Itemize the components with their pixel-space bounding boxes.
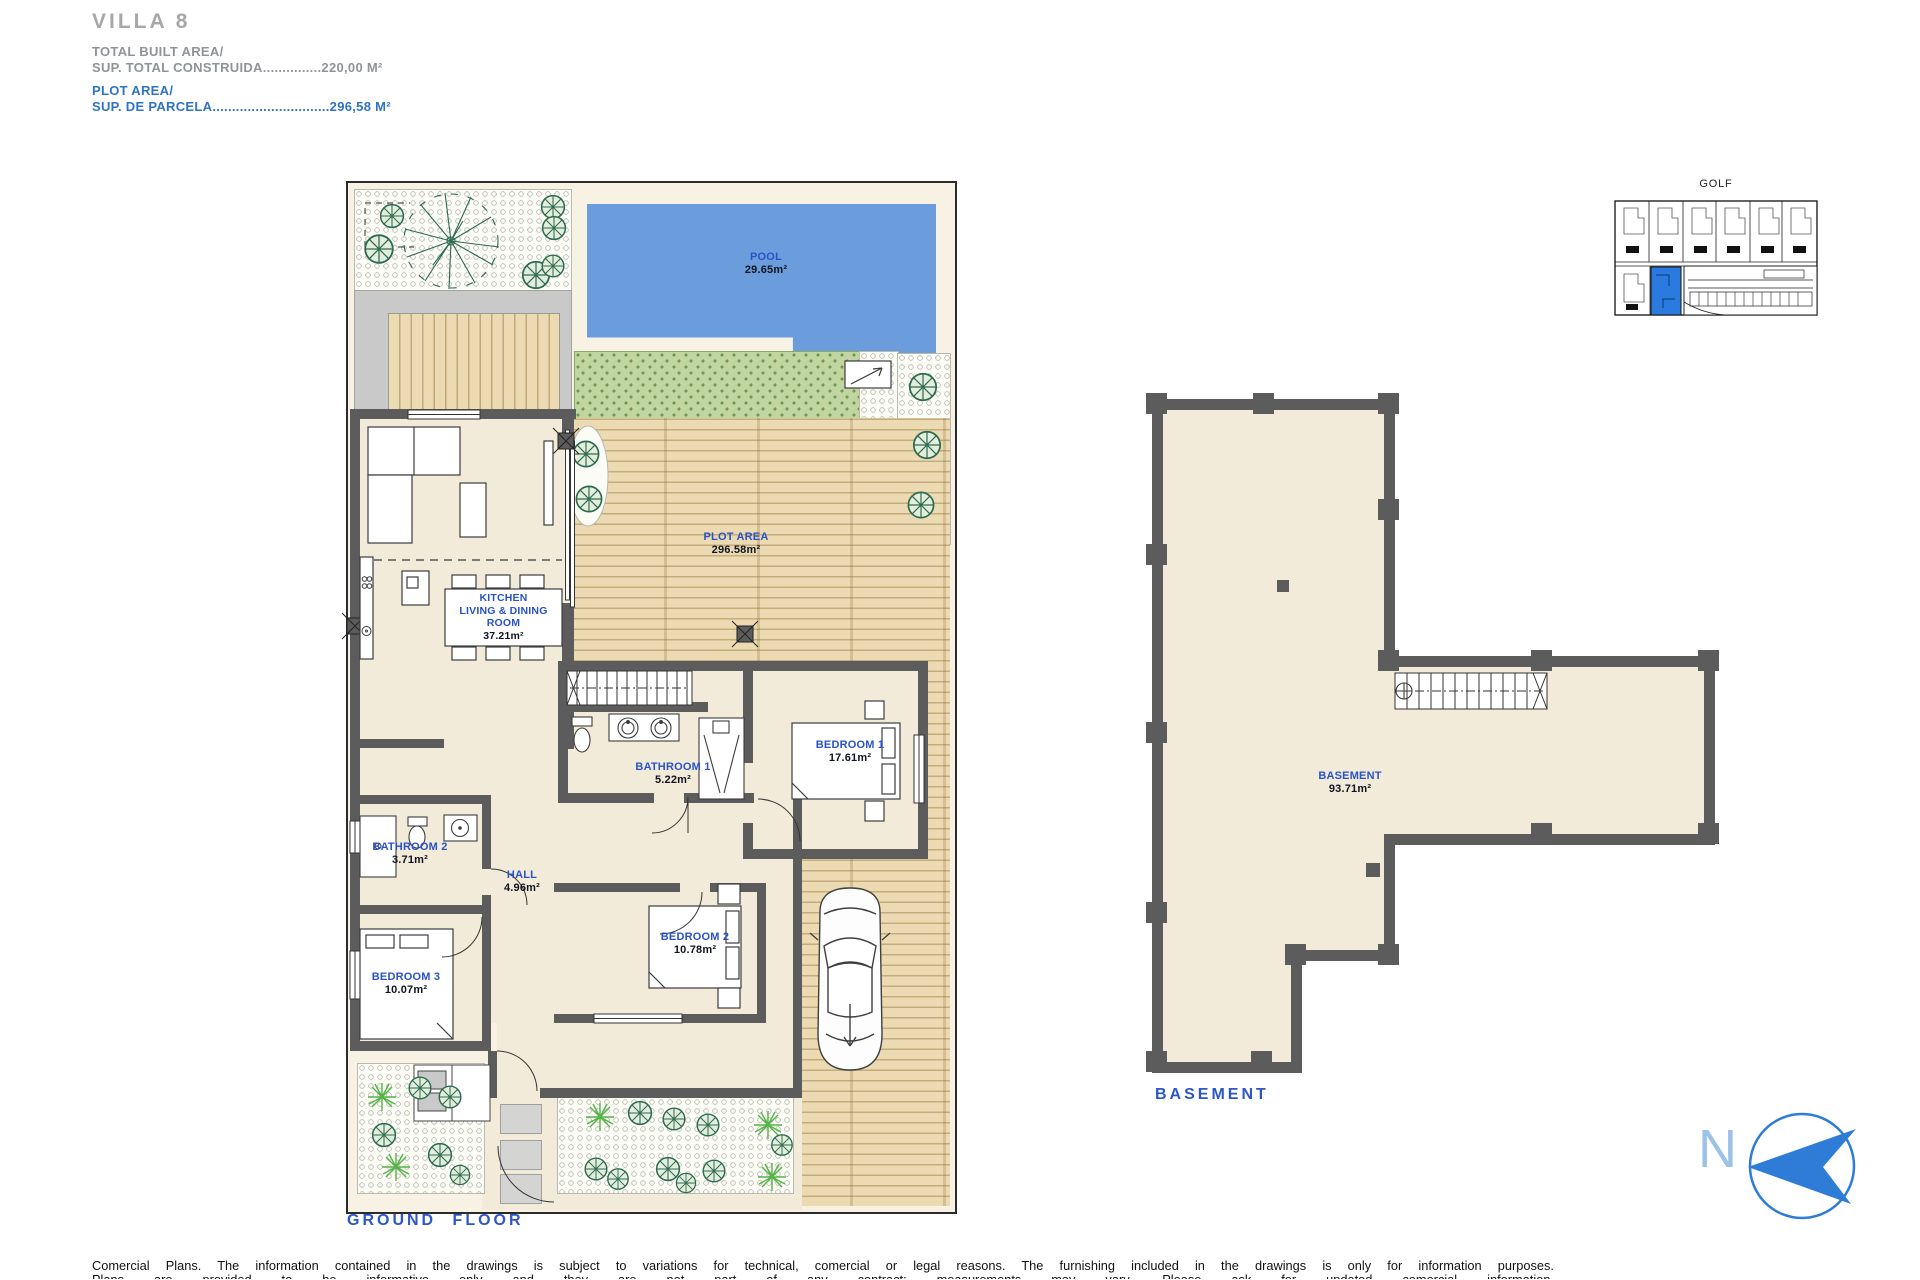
bedroom3-label: BEDROOM 3 10.07m² (344, 971, 468, 997)
disclaimer-line1: Comercial Plans. The information contain… (92, 1259, 1554, 1273)
bedroom1-label: BEDROOM 1 17.61m² (788, 739, 912, 765)
highlighted-unit (1651, 267, 1681, 315)
bathroom2-label: BATHROOM 2 3.71m² (348, 841, 472, 867)
pool-label: POOL 29.65m² (696, 251, 836, 277)
plot-area-block: PLOT AREA/ SUP. DE PARCELA..............… (92, 83, 391, 115)
large-tree-icon (404, 193, 499, 289)
bathroom1-label: BATHROOM 1 5.22m² (611, 761, 735, 787)
page-title: VILLA 8 (92, 10, 190, 34)
ground-floor-caption: GROUND FLOOR (347, 1212, 524, 1230)
car-icon (810, 888, 890, 1070)
built-area-block: TOTAL BUILT AREA/ SUP. TOTAL CONSTRUIDA.… (92, 44, 383, 76)
disclaimer-line2: Plans are provided to be informative onl… (92, 1273, 1554, 1279)
basement-label: BASEMENT 93.71m² (1275, 770, 1425, 796)
key-plan-map (1614, 200, 1818, 320)
disclaimer: Comercial Plans. The information contain… (92, 1259, 1554, 1279)
basement-caption: BASEMENT (1155, 1086, 1269, 1104)
plan-sheet: VILLA 8 TOTAL BUILT AREA/ SUP. TOTAL CON… (0, 0, 1920, 1280)
built-area-label: TOTAL BUILT AREA/ (92, 44, 383, 60)
key-plan: GOLF (1612, 178, 1820, 326)
ground-floor-linework (348, 183, 955, 1212)
hall-label: HALL 4.96m² (460, 869, 584, 895)
kitchen-label: KITCHEN LIVING & DINING ROOM 37.21m² (447, 592, 560, 642)
bedroom2-label: BEDROOM 2 10.78m² (633, 931, 757, 957)
north-arrow-icon (1698, 1092, 1883, 1232)
built-area-value: SUP. TOTAL CONSTRUIDA...............220,… (92, 60, 383, 76)
plot-area-label: PLOT AREA 296.58m² (666, 531, 806, 557)
plot-area-label: PLOT AREA/ (92, 83, 391, 99)
north-arrow: N (1698, 1092, 1883, 1232)
ground-floor-plan: POOL 29.65m² PLOT AREA 296.58m² KITCHEN … (346, 181, 957, 1214)
plot-area-value: SUP. DE PARCELA.........................… (92, 99, 391, 115)
key-plan-title: GOLF (1612, 178, 1820, 190)
basement-plan: BASEMENT 93.71m² (1157, 404, 1715, 1074)
basement-linework (1157, 404, 1715, 1074)
